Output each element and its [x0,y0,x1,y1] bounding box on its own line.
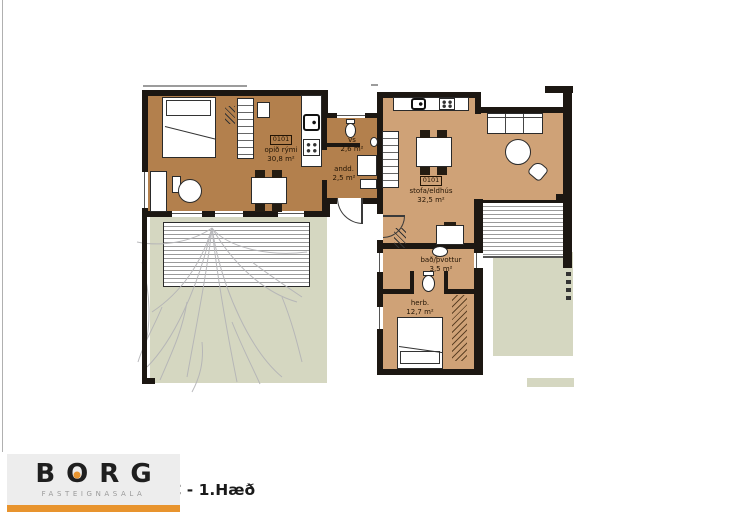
room-area: 2,5 m² [333,174,356,182]
room-area: 3,5 m² [430,265,453,273]
garden-boundary-wall [142,217,147,383]
desk [436,225,464,245]
borg-logo: B O R G FASTEIGNASALA [7,454,180,512]
page-edge-line [2,0,3,452]
sink-icon [303,114,320,131]
logo-accent-bar [7,505,180,512]
round-table [505,139,531,165]
room-name: stofa/eldhús [409,187,452,195]
wall [322,198,330,217]
chair [255,204,265,212]
sink-icon [411,98,426,110]
room-label-wc: vs 2,6 m² [337,136,367,155]
desk-item [444,222,456,226]
round-table [178,179,202,203]
chair [437,167,447,175]
window [142,172,148,208]
window [215,211,243,217]
radiator-icon [394,228,406,248]
room-label-entry: andd. 2,5 m² [327,165,361,184]
room-area: 12,7 m² [406,308,433,316]
logo-letter-o: O [66,461,88,487]
garden-right [493,252,573,356]
logo-dot-icon [74,472,81,479]
garden-boundary-cap [142,378,155,384]
garden-strip [527,378,574,387]
unit-number: 0101 [270,135,293,145]
radiator-icon [225,106,235,124]
wall [381,289,413,294]
entry-bench [360,179,377,189]
cabinet [257,102,270,118]
window [337,113,365,118]
toilet-icon [422,275,435,292]
chair [272,204,282,212]
dining-table [251,177,287,204]
bed [162,97,216,158]
window [172,211,202,217]
room-area: 2,6 m² [341,145,364,153]
room-label-open-space: 0101 opið rými 30,8 m² [253,135,309,165]
sofa [487,113,543,134]
tree-icon [132,202,342,402]
window [377,253,383,272]
logo-letter: G [130,461,151,487]
unit-number: 0101 [420,176,443,186]
sink-icon [370,137,378,147]
door-leaf [383,215,405,217]
chair [437,130,447,138]
logo-wordmark: B O R G [35,461,151,487]
chair [255,170,265,178]
kitchen-counter [393,97,469,111]
room-area: 32,5 m² [417,196,444,204]
room-label-bathroom: bað/þvottur 3,5 m² [412,256,470,275]
room-name: herb. [411,299,429,307]
room-name: vs [348,136,356,144]
room-name: andd. [334,165,354,173]
neighbor-wall-hatch [566,272,571,304]
window [474,253,483,268]
logo-letter: R [99,461,119,487]
logo-letter: B [35,461,55,487]
wall [377,243,481,249]
dimension-tick [371,84,378,86]
door-leaf [361,198,363,224]
chair [272,170,282,178]
wall [474,199,483,375]
wall [377,369,483,375]
dining-table [416,137,452,167]
wall [445,289,474,294]
room-label-bedroom: herb. 12,7 m² [398,299,442,318]
room-name: bað/þvottur [420,256,461,264]
logo-subtitle: FASTEIGNASALA [42,490,146,498]
room-name: opið rými [265,146,298,154]
tall-cabinet [382,131,399,188]
dimension-line [143,85,247,87]
floor-plan-page: 0101 opið rými 30,8 m² vs 2,6 m² andd. 2… [0,0,741,524]
toilet-tank [346,119,355,124]
wardrobe-hatch [452,295,467,361]
room-area: 30,8 m² [267,155,294,163]
room-label-living-kitchen: 0101 stofa/eldhús 32,5 m² [402,176,460,206]
chair [420,130,430,138]
closet [237,98,254,159]
wall [563,86,572,268]
chair [420,167,430,175]
deck-right [479,200,565,258]
window [377,307,383,329]
plan-caption: C - 1.Hæð [170,481,255,499]
wardrobe [150,171,167,212]
stove-icon [439,98,455,110]
wall [556,194,568,202]
bed [397,317,443,369]
